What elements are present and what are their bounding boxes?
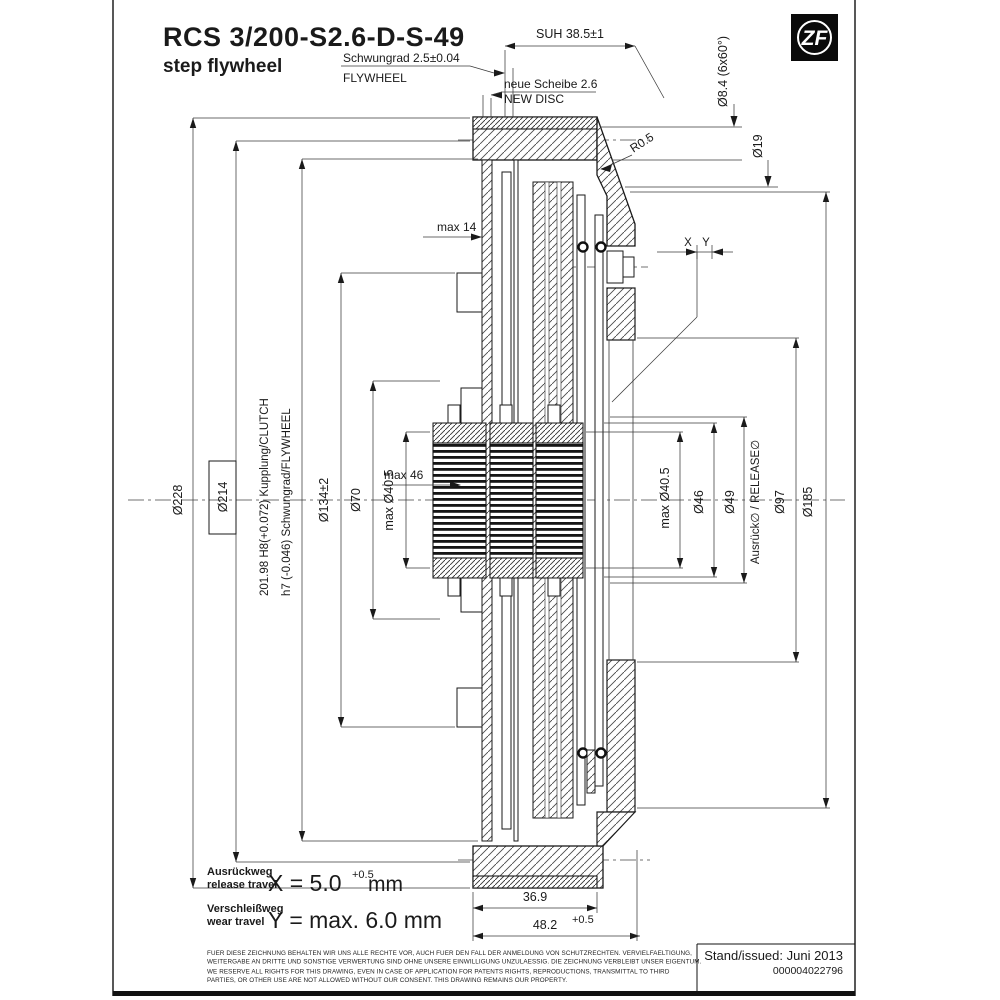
dim-d46: Ø46 [692, 490, 706, 514]
dim-fit-clutch: 201.98 H8(+0.072) Kupplung/CLUTCH [259, 398, 271, 596]
dim-fit-flywheel: h7 (-0.046) Schwungrad/FLYWHEEL [281, 408, 293, 596]
dim-d185: Ø185 [801, 487, 815, 518]
footer-disclaimer-en-1: WE RESERVE ALL RIGHTS FOR THIS DRAWING, … [207, 969, 670, 976]
footer-disclaimer-de-1: FUER DIESE ZEICHNUNG BEHALTEN WIR UNS AL… [207, 950, 692, 957]
travel-release-unit: mm [368, 873, 403, 896]
dim-d49: Ø49 [723, 490, 737, 514]
dim-d97: Ø97 [773, 490, 787, 514]
travel-release-en: release travel [207, 879, 277, 891]
label-flywheel-de: Schwungrad 2.5±0.04 [343, 51, 460, 65]
dim-bolt-hole: Ø8.4 (6x60°) [716, 36, 730, 107]
title-model: RCS 3/200-S2.6-D-S-49 [163, 22, 465, 52]
disc-segment-tab [461, 388, 482, 424]
spring-finger-section [587, 750, 595, 793]
flywheel-ring-bottom [473, 846, 603, 888]
disc-segment-tab [457, 688, 482, 727]
dim-width-total-tol: +0.5 [572, 914, 594, 926]
flywheel-ring-top [473, 117, 597, 160]
dim-d228: Ø228 [171, 485, 185, 516]
disc-segment-tab [457, 273, 482, 312]
label-x-travel: X [684, 237, 692, 249]
cover-mid-section [607, 288, 635, 340]
dim-d40-5-right: max Ø40.5 [658, 467, 672, 528]
label-flywheel-en: FLYWHEEL [343, 71, 407, 85]
travel-release-de: Ausrückweg [207, 866, 272, 878]
dim-bolt-pilot: Ø19 [751, 134, 765, 158]
hub-splines [433, 405, 583, 596]
label-release-dia: Ausrück∅ / RELEASE∅ [750, 440, 762, 564]
footer-doc-number: 000004022796 [773, 965, 843, 977]
dim-d134: Ø134±2 [317, 478, 331, 522]
dim-max46: max 46 [384, 468, 424, 482]
release-pin [607, 251, 634, 283]
label-y-travel: Y [702, 237, 710, 249]
dim-d70: Ø70 [349, 488, 363, 512]
zf-logo: ZF [791, 14, 838, 61]
cover-rim-plate [595, 215, 603, 786]
hub-spline-block-2 [490, 443, 533, 558]
dim-width-flywheel: 36.9 [523, 890, 547, 904]
footer-disclaimer-de-2: WEITERGABE AN DRITTE UND SONSTIGE VERWER… [207, 959, 702, 966]
disc-segment-tab [461, 576, 482, 612]
dim-d214: Ø214 [216, 482, 230, 513]
footer: FUER DIESE ZEICHNUNG BEHALTEN WIR UNS AL… [207, 948, 843, 984]
drawing-sheet: ZF RCS 3/200-S2.6-D-S-49 step flywheel [0, 0, 1000, 1000]
cover-bottom-section [607, 660, 635, 812]
footer-disclaimer-en-2: PARTIES, OR OTHER USE ARE NOT ALLOWED WI… [207, 977, 567, 984]
dim-width-total: 48.2 [533, 918, 557, 932]
technical-drawing: ZF RCS 3/200-S2.6-D-S-49 step flywheel [0, 0, 1000, 1000]
footer-issued: Stand/issued: Juni 2013 [704, 948, 843, 963]
hub-spline-block-1 [433, 443, 486, 558]
zf-logo-text: ZF [801, 27, 829, 50]
dim-suh: SUH 38.5±1 [536, 27, 604, 41]
dim-max14: max 14 [437, 220, 477, 234]
title-subtitle: step flywheel [163, 56, 282, 77]
travel-wear-en: wear travel [206, 916, 264, 928]
travel-release-value: X = 5.0 [268, 870, 342, 896]
travel-spec: Ausrückweg release travel X = 5.0 +0.5 m… [206, 866, 442, 933]
travel-wear-value: Y = max. 6.0 mm [268, 907, 442, 933]
label-new-disc-en: NEW DISC [504, 92, 564, 106]
dim-r05: R0.5 [627, 130, 656, 156]
hub-spline-block-3 [536, 443, 583, 558]
label-new-disc-de: neue Scheibe 2.6 [504, 77, 598, 91]
frame-bottom-bar [113, 991, 855, 996]
cover-bottom-chamfer [597, 812, 635, 846]
